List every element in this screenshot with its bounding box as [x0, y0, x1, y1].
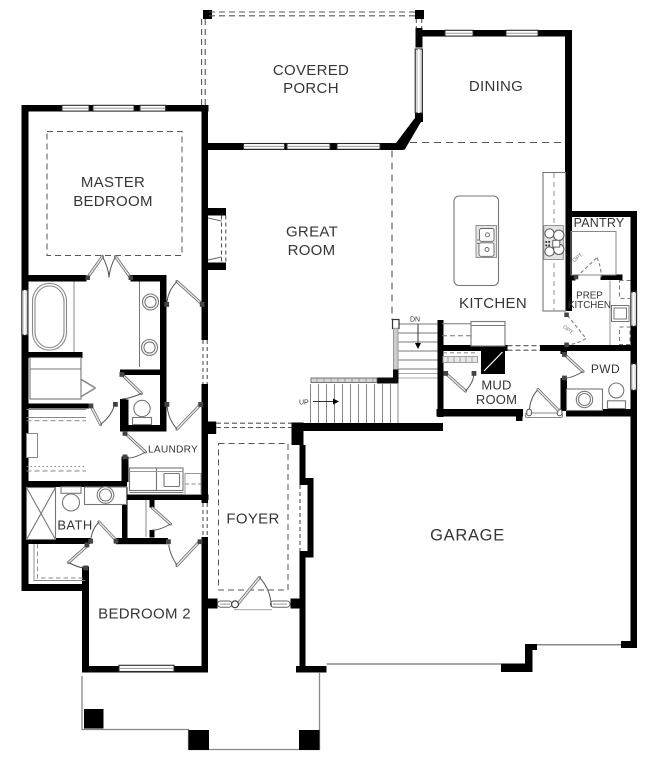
- svg-text:GREAT: GREAT: [286, 224, 338, 241]
- svg-text:PWD: PWD: [591, 362, 620, 376]
- svg-text:PORCH: PORCH: [283, 80, 339, 97]
- svg-text:BATH: BATH: [57, 518, 92, 533]
- svg-text:PANTRY: PANTRY: [574, 216, 625, 230]
- svg-text:FOYER: FOYER: [226, 511, 279, 528]
- svg-text:ROOM: ROOM: [288, 242, 336, 259]
- svg-text:UP: UP: [299, 400, 309, 407]
- svg-text:GARAGE: GARAGE: [430, 527, 505, 545]
- svg-text:BEDROOM: BEDROOM: [73, 193, 153, 210]
- svg-text:LAUNDRY: LAUNDRY: [148, 445, 198, 456]
- svg-text:KITCHEN: KITCHEN: [568, 300, 611, 311]
- svg-text:DINING: DINING: [469, 78, 523, 95]
- svg-text:COVERED: COVERED: [273, 62, 349, 79]
- svg-text:DN: DN: [410, 317, 420, 324]
- svg-text:BEDROOM 2: BEDROOM 2: [98, 606, 191, 623]
- svg-text:MASTER: MASTER: [81, 174, 145, 191]
- svg-text:MUD: MUD: [481, 378, 511, 393]
- svg-text:ROOM: ROOM: [476, 392, 517, 407]
- svg-text:KITCHEN: KITCHEN: [459, 295, 527, 312]
